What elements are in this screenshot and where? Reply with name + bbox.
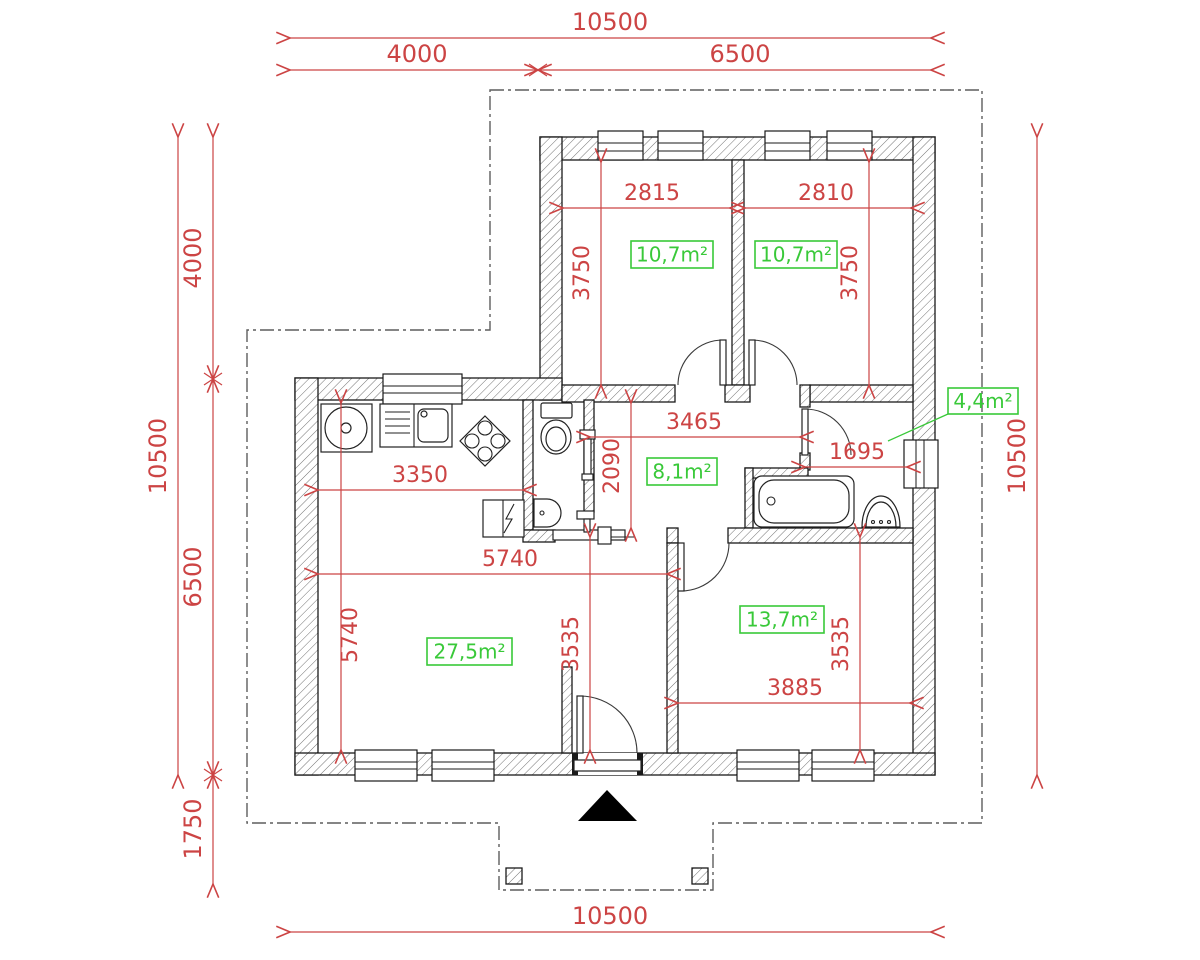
- dimension-label: 1750: [179, 798, 207, 859]
- bathroom-basin: [862, 496, 900, 527]
- wall-tub-niche-left: [745, 468, 753, 528]
- area-label-text: 8,1m²: [652, 460, 711, 484]
- wall-upper-left: [540, 137, 562, 400]
- dimension-label: 2810: [798, 181, 854, 206]
- dimension-hall-width: 3465: [590, 410, 800, 437]
- dimension-label: 5740: [482, 547, 538, 572]
- window-bed1-b: [658, 131, 703, 160]
- wall-bath-bedroom: [728, 528, 913, 543]
- dimension-label: 6500: [709, 40, 770, 68]
- wall-bedroom-divider: [732, 160, 744, 385]
- electrical-panel: [483, 500, 524, 537]
- dimension-top-overall: 10500: [290, 8, 931, 38]
- door-bedroom-1: [678, 340, 726, 385]
- floor-plan-drawing: 1050040006500105001050040006500175010500…: [0, 0, 1200, 960]
- window-bed1-a: [598, 131, 643, 160]
- area-label-text: 10,7m²: [636, 243, 708, 267]
- window-kitchen: [383, 374, 462, 404]
- dimension-label: 3350: [392, 463, 448, 488]
- dimension-bed1-height: 3750: [570, 162, 601, 385]
- wall-left: [295, 378, 318, 775]
- window-living-a: [355, 750, 417, 781]
- window-bed2-b: [827, 131, 872, 160]
- wall-hall-right: [810, 385, 913, 402]
- dimension-label: 3535: [559, 616, 584, 672]
- dimension-bed3-width: 3885: [678, 676, 910, 703]
- wall-hall-left: [562, 385, 675, 402]
- wc-basin: [534, 499, 561, 527]
- entrance-arrow: [578, 790, 637, 821]
- bathtub: [754, 476, 854, 527]
- dimension-bottom-overall: 10500: [290, 902, 931, 932]
- area-label-text: 4,4m²: [953, 389, 1012, 413]
- dimension-right-overall: 10500: [1003, 137, 1037, 775]
- dimension-label: 3750: [570, 245, 595, 301]
- dimension-label: 10500: [1003, 418, 1031, 494]
- dimension-bath-width: 1695: [805, 440, 907, 467]
- dimension-label: 1695: [829, 440, 885, 465]
- entrance-sill: [574, 760, 641, 771]
- area-label-bedroom-3: 13,7m²: [740, 606, 824, 633]
- wall-vestibule-stub: [562, 667, 572, 753]
- dimension-living-width: 5740: [318, 547, 667, 574]
- dimension-left-1750: 1750: [179, 775, 213, 884]
- dimension-left-4000: 4000: [179, 137, 213, 379]
- dimension-top-right: 6500: [538, 40, 931, 70]
- window-bed2-a: [765, 131, 810, 160]
- dimension-label: 3535: [829, 616, 854, 672]
- area-label-text: 10,7m²: [760, 243, 832, 267]
- window-bed3-a: [737, 750, 799, 781]
- dimension-label: 6500: [179, 546, 207, 607]
- dimension-label: 4000: [179, 227, 207, 288]
- door-bedroom-2: [749, 340, 797, 385]
- dimension-label: 3885: [767, 676, 823, 701]
- area-label-bedroom-2: 10,7m²: [755, 241, 837, 268]
- kitchen-appliance-circle: [321, 404, 372, 452]
- dimension-left-overall: 10500: [144, 137, 178, 775]
- dimension-label: 4000: [386, 40, 447, 68]
- area-label-bedroom-1: 10,7m²: [631, 241, 713, 268]
- dimension-label: 10500: [572, 902, 648, 930]
- dimension-bed3-height: 3535: [829, 537, 860, 750]
- dimension-label: 10500: [144, 418, 172, 494]
- wall-wc-bottom: [523, 530, 555, 542]
- dimension-bed1-width: 2815: [563, 181, 730, 208]
- wall-bedroom3-left: [667, 543, 678, 753]
- area-label-text: 13,7m²: [746, 608, 818, 632]
- door-entrance: [572, 696, 643, 775]
- dimension-bed2-width: 2810: [745, 181, 911, 208]
- dimension-top-left: 4000: [290, 40, 538, 70]
- dimension-kitchen-width: 3350: [318, 463, 523, 490]
- wall-bath-jamb-top: [800, 385, 810, 407]
- window-bed3-b: [812, 750, 874, 781]
- dimension-label: 2090: [600, 438, 625, 494]
- dimension-living-height: 5740: [338, 403, 363, 750]
- dimension-left-6500: 6500: [179, 379, 213, 775]
- area-label-living: 27,5m²: [427, 638, 512, 665]
- dimension-label: 10500: [572, 8, 648, 36]
- wall-divider-foot: [725, 385, 750, 402]
- window-living-b: [432, 750, 494, 781]
- wall-bath-bedroom-left: [667, 528, 678, 543]
- porch-column-left: [506, 868, 522, 884]
- dimension-label: 2815: [624, 181, 680, 206]
- dimension-label: 5740: [338, 607, 363, 663]
- floor-plan-page: 1050040006500105001050040006500175010500…: [0, 0, 1200, 960]
- dimension-label: 3750: [838, 245, 863, 301]
- dimension-hall-height: 2090: [600, 403, 631, 528]
- area-label-text: 27,5m²: [433, 640, 505, 664]
- porch-column-right: [692, 868, 708, 884]
- area-label-hallway: 8,1m²: [647, 458, 717, 485]
- window-bathroom: [904, 440, 938, 488]
- hall-open-door-assembly: [553, 511, 634, 544]
- kitchen-sink: [380, 404, 452, 447]
- kitchen-stove: [460, 416, 510, 466]
- dimension-label: 3465: [666, 410, 722, 435]
- door-bedroom-3: [678, 543, 729, 591]
- wc-toilet: [541, 403, 572, 454]
